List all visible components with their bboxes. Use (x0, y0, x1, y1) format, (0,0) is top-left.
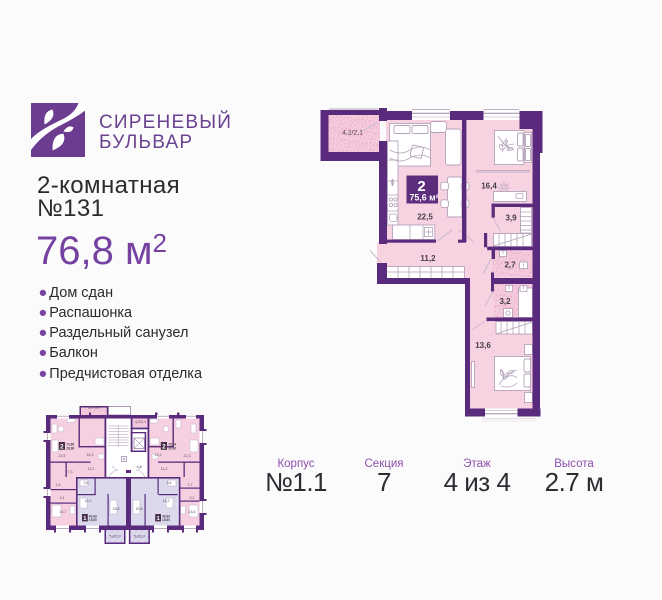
svg-text:2,7: 2,7 (504, 261, 516, 270)
svg-text:4,8: 4,8 (137, 465, 142, 469)
svg-text:11,2: 11,2 (420, 254, 436, 263)
svg-text:14,7: 14,7 (60, 510, 67, 514)
svg-text:5,8/2,9: 5,8/2,9 (110, 535, 121, 539)
svg-text:15,8: 15,8 (136, 507, 143, 511)
svg-text:16,4: 16,4 (481, 182, 497, 191)
svg-text:3,9: 3,9 (505, 214, 517, 223)
svg-text:3,4: 3,4 (60, 496, 65, 500)
svg-text:13,6: 13,6 (189, 510, 196, 514)
svg-text:4,2/2,1: 4,2/2,1 (135, 420, 146, 424)
svg-text:15,8: 15,8 (113, 507, 120, 511)
svg-text:22,3: 22,3 (184, 454, 191, 458)
svg-text:15,60: 15,60 (162, 518, 170, 522)
svg-text:16,4: 16,4 (155, 453, 162, 457)
svg-text:15,60: 15,60 (89, 518, 97, 522)
svg-text:13,2: 13,2 (85, 499, 92, 503)
svg-text:13,6: 13,6 (475, 341, 491, 350)
svg-text:75,6 м²: 75,6 м² (410, 192, 439, 202)
svg-text:11,2: 11,2 (88, 467, 95, 471)
svg-text:2: 2 (162, 443, 166, 450)
svg-text:2,4: 2,4 (56, 483, 61, 487)
svg-text:28,98: 28,98 (66, 447, 74, 451)
svg-text:3,2: 3,2 (190, 496, 195, 500)
svg-text:13,2: 13,2 (163, 499, 170, 503)
svg-text:30,00: 30,00 (168, 447, 176, 451)
svg-text:3,6: 3,6 (84, 481, 89, 485)
svg-text:5,8/2,9: 5,8/2,9 (134, 535, 145, 539)
svg-text:22,5: 22,5 (59, 454, 66, 458)
svg-text:11,2: 11,2 (161, 467, 168, 471)
svg-text:2,7: 2,7 (188, 483, 193, 487)
svg-text:3,6: 3,6 (167, 481, 172, 485)
svg-text:КУХНЯ: КУХНЯ (88, 406, 100, 410)
svg-text:7,3: 7,3 (68, 470, 73, 474)
svg-text:22,5: 22,5 (417, 213, 433, 222)
svg-text:4,2/2,1: 4,2/2,1 (342, 130, 363, 137)
svg-text:3,2: 3,2 (499, 297, 511, 306)
svg-text:2: 2 (60, 443, 64, 450)
svg-text:16,3: 16,3 (87, 453, 94, 457)
